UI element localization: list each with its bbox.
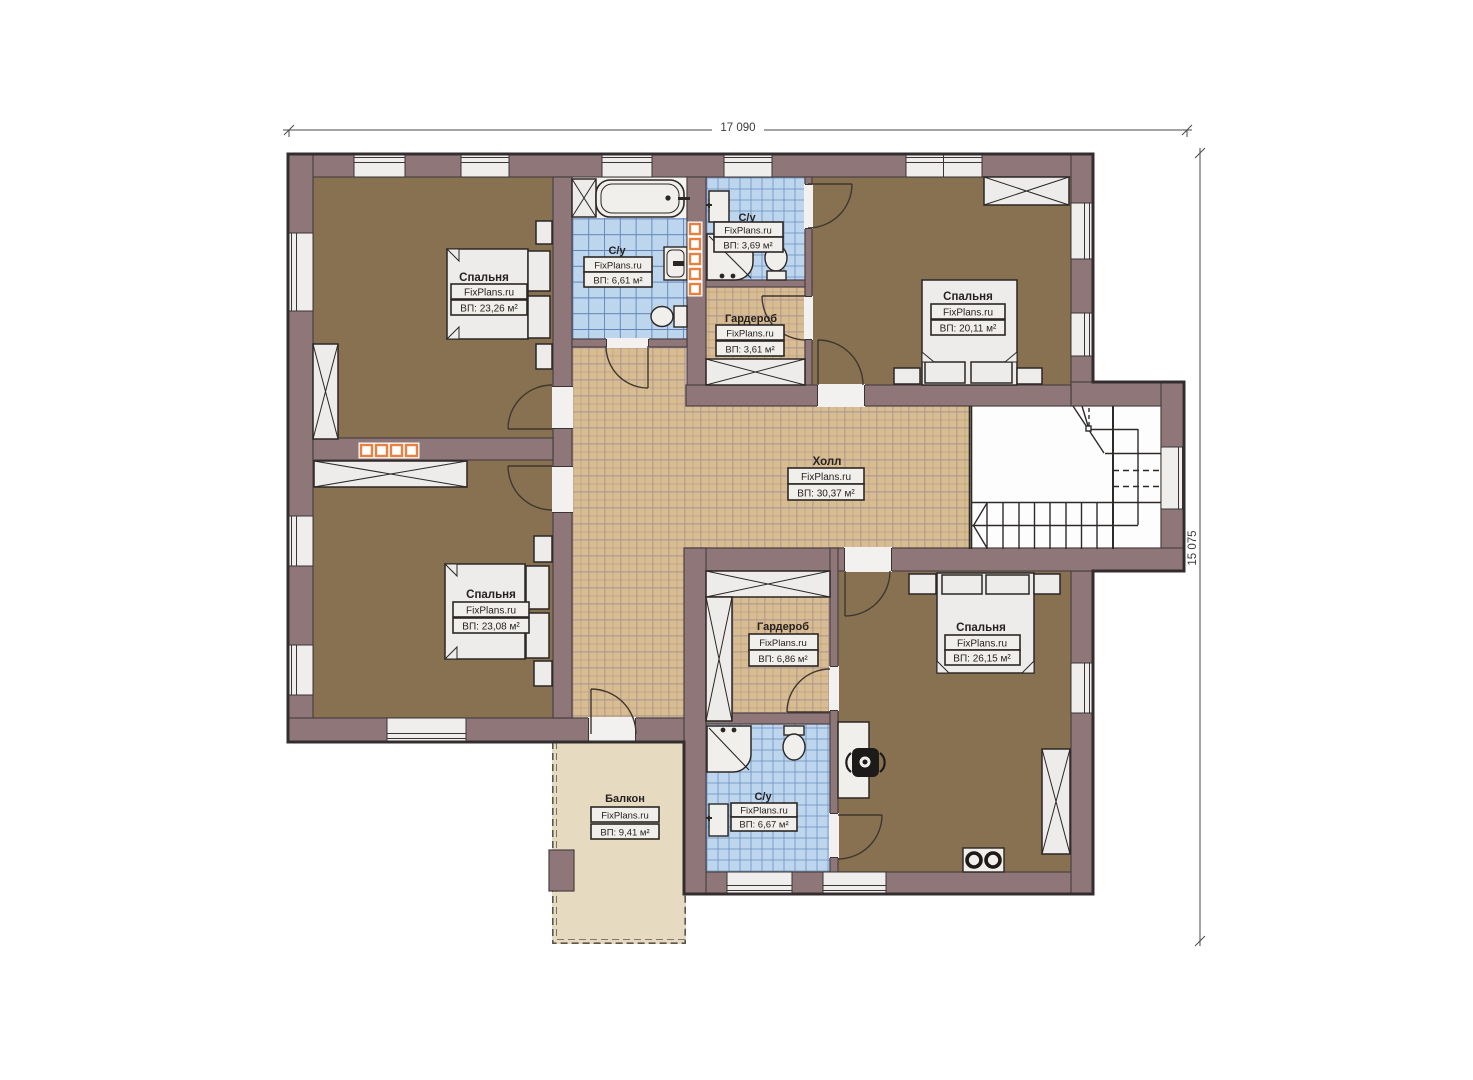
svg-text:ВП: 6,86 м²: ВП: 6,86 м²: [758, 654, 807, 665]
svg-text:Спальня: Спальня: [466, 589, 516, 601]
svg-text:FixPlans.ru: FixPlans.ru: [801, 472, 851, 483]
svg-text:Балкон: Балкон: [605, 793, 645, 805]
svg-text:ВП: 3,69 м²: ВП: 3,69 м²: [723, 241, 772, 252]
svg-text:ВП: 20,11 м²: ВП: 20,11 м²: [940, 324, 997, 335]
svg-text:С/у: С/у: [608, 245, 626, 257]
svg-text:FixPlans.ru: FixPlans.ru: [594, 261, 642, 272]
svg-text:ВП: 30,37 м²: ВП: 30,37 м²: [797, 489, 855, 500]
svg-text:FixPlans.ru: FixPlans.ru: [759, 638, 807, 649]
svg-text:FixPlans.ru: FixPlans.ru: [726, 329, 774, 340]
svg-text:ВП: 26,15 м²: ВП: 26,15 м²: [953, 654, 1011, 665]
svg-text:FixPlans.ru: FixPlans.ru: [943, 308, 993, 319]
svg-text:Спальня: Спальня: [956, 622, 1006, 634]
svg-text:Холл: Холл: [813, 456, 842, 468]
svg-text:FixPlans.ru: FixPlans.ru: [957, 639, 1007, 650]
svg-text:ВП: 23,26 м²: ВП: 23,26 м²: [460, 304, 518, 315]
svg-text:FixPlans.ru: FixPlans.ru: [601, 811, 649, 822]
svg-text:FixPlans.ru: FixPlans.ru: [740, 806, 788, 817]
svg-text:Гардероб: Гардероб: [757, 621, 809, 633]
svg-text:С/у: С/у: [754, 791, 772, 803]
svg-text:ВП: 9,41 м²: ВП: 9,41 м²: [600, 828, 649, 839]
svg-text:FixPlans.ru: FixPlans.ru: [464, 288, 514, 299]
svg-text:17 090: 17 090: [720, 122, 755, 134]
svg-text:15 075: 15 075: [1187, 530, 1199, 565]
svg-text:Спальня: Спальня: [943, 291, 993, 303]
svg-text:Гардероб: Гардероб: [725, 313, 777, 325]
svg-text:FixPlans.ru: FixPlans.ru: [466, 606, 516, 617]
svg-text:ВП: 6,67 м²: ВП: 6,67 м²: [739, 820, 788, 831]
svg-text:ВП: 6,61 м²: ВП: 6,61 м²: [593, 276, 642, 287]
svg-text:ВП: 3,61 м²: ВП: 3,61 м²: [725, 345, 774, 356]
svg-text:Спальня: Спальня: [459, 272, 509, 284]
svg-text:FixPlans.ru: FixPlans.ru: [724, 226, 772, 237]
svg-text:ВП: 23,08 м²: ВП: 23,08 м²: [462, 622, 520, 633]
